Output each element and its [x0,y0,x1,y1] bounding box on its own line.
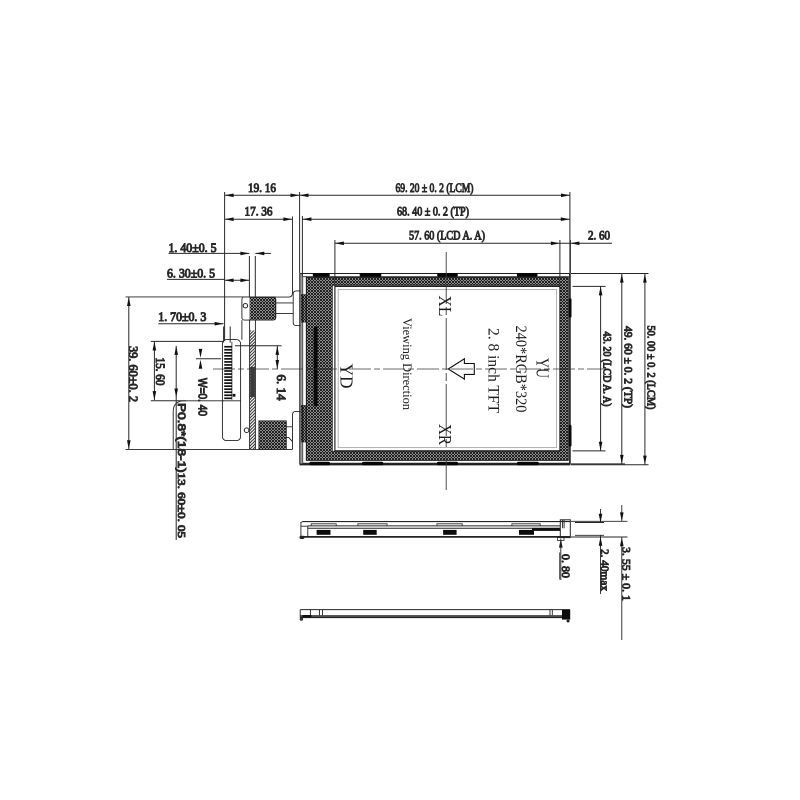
svg-text:240*RGB*320: 240*RGB*320 [512,326,529,413]
svg-text:1. 40±0. 5: 1. 40±0. 5 [169,241,217,255]
svg-text:1. 70±0. 3: 1. 70±0. 3 [158,310,206,324]
svg-text:P0.8*(18-1)13. 60±0. 05: P0.8*(18-1)13. 60±0. 05 [175,403,187,538]
svg-text:W=0. 40: W=0. 40 [195,378,209,416]
svg-text:6. 30±0. 5: 6. 30±0. 5 [167,266,215,280]
svg-text:68. 40 ± 0. 2 (TP): 68. 40 ± 0. 2 (TP) [397,205,469,219]
svg-text:19. 16: 19. 16 [248,181,276,195]
svg-text:0. 80: 0. 80 [559,554,572,578]
svg-text:2. 60: 2. 60 [588,229,610,243]
svg-text:2. 8 inch TFT: 2. 8 inch TFT [485,328,502,414]
svg-text:Viewing Direction: Viewing Direction [400,318,414,411]
svg-text:YU: YU [533,358,553,378]
svg-text:2. 40max: 2. 40max [598,549,612,591]
svg-text:XL: XL [435,296,455,317]
svg-text:17. 36: 17. 36 [245,205,273,219]
svg-text:39. 60±0. 2: 39. 60±0. 2 [126,346,140,402]
svg-text:YD: YD [337,364,357,389]
svg-text:43. 20 (LCD A. A): 43. 20 (LCD A. A) [600,332,613,407]
svg-text:49. 60 ± 0. 2 (TP): 49. 60 ± 0. 2 (TP) [621,326,635,408]
svg-text:XR: XR [435,424,455,445]
svg-text:50. 00 ± 0. 2 (LCM): 50. 00 ± 0. 2 (LCM) [644,326,658,410]
svg-text:6. 14: 6. 14 [274,375,288,401]
svg-text:3. 55 ± 0. 1: 3. 55 ± 0. 1 [620,547,634,601]
svg-text:69. 20 ± 0. 2 (LCM): 69. 20 ± 0. 2 (LCM) [396,181,474,195]
svg-text:15. 60: 15. 60 [153,358,167,386]
svg-text:57. 60 (LCD A. A): 57. 60 (LCD A. A) [409,229,485,243]
